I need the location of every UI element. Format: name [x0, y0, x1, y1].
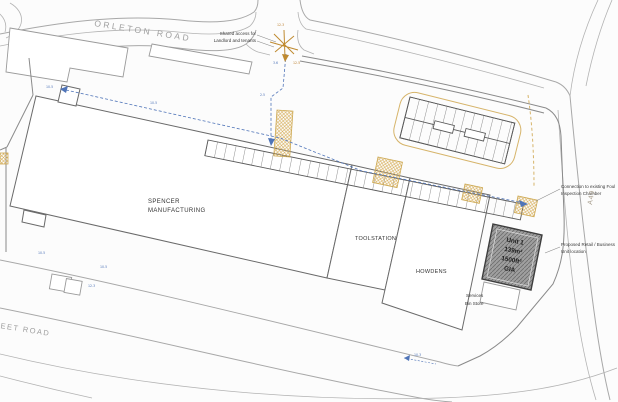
site-plan-drawing: SPENCER MANUFACTURING TOOLSTATION HOWDEN… — [0, 0, 618, 402]
existing-building-north-west — [6, 28, 128, 82]
level-marker: 10.5 — [100, 265, 107, 269]
annotation-connection: Connection to existing Foul Inspection C… — [536, 184, 615, 201]
level-marker: 12.3 — [277, 23, 284, 27]
connection-line1: Connection to existing Foul — [561, 184, 615, 189]
level-marker: 10.5 — [46, 85, 53, 89]
proposed-unit-line1: Proposed Retail / Business — [561, 242, 616, 247]
substation-structures — [49, 274, 82, 295]
level-marker: 12.5 — [293, 61, 300, 65]
level-marker: 3.6 — [273, 61, 278, 65]
proposed-unit-line2: Unit location — [561, 249, 586, 254]
shared-access-line2: Landlord and tenants — [214, 38, 257, 43]
shared-access-line1: Shared access for — [220, 31, 257, 36]
level-marker: 10.5 — [38, 251, 45, 255]
spencer-label-line2: MANUFACTURING — [148, 208, 206, 214]
annotation-proposed-unit: Proposed Retail / Business Unit location — [545, 242, 616, 254]
road-label-a49: A49 — [587, 190, 596, 206]
access-marker — [270, 30, 298, 62]
building-unit1-proposed: Unit 1 139m² 1500ft² GIA — [482, 224, 542, 290]
level-marker: 10.3 — [414, 353, 421, 357]
spencer-label-line1: SPENCER — [148, 199, 180, 205]
toolstation-label: TOOLSTATION — [355, 236, 396, 242]
services-label-line1: Services — [466, 293, 484, 298]
parking-double-row — [391, 89, 524, 171]
howdens-label: HOWDENS — [416, 269, 447, 275]
road-label-sheet: SHEET ROAD — [0, 319, 51, 338]
level-marker: 12.3 — [88, 284, 95, 288]
level-marker: 2.5 — [260, 93, 265, 97]
services-label-line2: Bin Store — [465, 301, 484, 306]
level-marker: 10.5 — [150, 101, 157, 105]
building-spencer-manufacturing: SPENCER MANUFACTURING — [10, 85, 352, 278]
road-a49 — [556, 0, 612, 400]
site-plan-page: SPENCER MANUFACTURING TOOLSTATION HOWDEN… — [0, 0, 618, 402]
